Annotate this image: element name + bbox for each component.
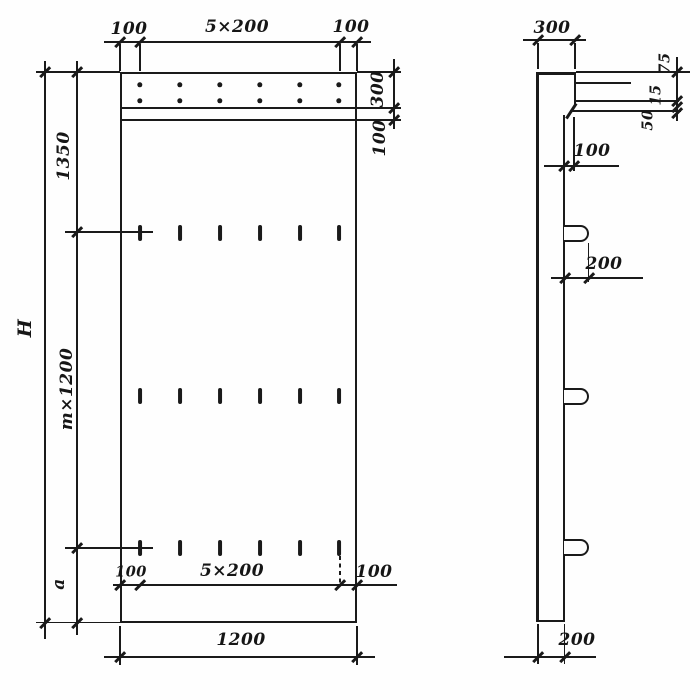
loop-front-mark [298,225,302,241]
loop-front-mark [258,225,262,241]
lifting-loop [564,539,589,556]
dim-label-step-100: 100 [574,141,611,161]
dim-label-top-spacing: 5×200 [205,17,269,37]
bottom-dim-line [104,656,375,658]
dim-label-1350: 1350 [54,131,74,180]
dim-label-15: 15 [648,84,665,105]
loop-front-mark [298,540,302,556]
loop-front-mark [178,388,182,404]
loop-front-mark [258,540,262,556]
loop-front-mark [337,225,341,241]
dim-label-top-right-margin: 100 [333,17,370,37]
loop-front-mark [218,540,222,556]
dim-label-75: 75 [657,52,674,73]
dashed-extension-line [339,556,341,585]
dim-label-loop-200: 200 [586,254,623,274]
shelf-lower-line [570,110,681,112]
loop-front-mark [337,388,341,404]
loop-front-mark [298,388,302,404]
technical-drawing: 100 5×200 100 300 100 H 1350 m×1200 a 10… [0,0,700,700]
extension-line [574,43,576,69]
dim-label-top-left-margin: 100 [111,19,148,39]
loop-front-mark [258,388,262,404]
dim-label-inner-left-margin: 100 [115,564,147,581]
loop-front-mark [138,388,142,404]
extension-line [119,44,121,71]
side-bottom-dim-line [504,656,596,658]
dim-label-a: a [49,578,69,590]
loop-front-mark [138,225,142,241]
loop-front-mark [178,540,182,556]
panel-outline [120,72,357,623]
extension-line [537,43,539,69]
lifting-loop [564,225,589,242]
top-strip-line [122,119,355,121]
dim-label-overall-height: H [14,319,36,337]
extension-line [139,44,141,71]
top-dim-line [104,41,371,43]
dim-label-width-1200: 1200 [216,630,265,650]
side-bottom-edge [536,620,565,623]
dim-label-inner-spacing: 5×200 [200,561,264,581]
dim-label-depth-300: 300 [534,18,571,38]
loop-front-mark [218,388,222,404]
dim-label-strip: 100 [370,120,390,157]
top-band-bottom-line [122,107,355,109]
loop-front-mark [218,225,222,241]
extension-line [356,44,358,71]
overall-dim-line [44,61,46,639]
dim-label-m1200: m×1200 [57,348,77,431]
loop-front-mark [178,225,182,241]
loop-front-mark [337,540,341,556]
shelf-top-line [576,82,631,84]
side-left-edge [536,72,539,622]
dim-label-top-band: 300 [368,71,388,108]
dim-label-50: 50 [640,109,657,130]
side-top-edge [536,72,576,75]
lifting-loop [564,388,589,405]
extension-line [339,44,341,71]
loop-front-mark [138,540,142,556]
step-dim-line [544,165,619,167]
dim-label-thickness-200: 200 [559,630,596,650]
